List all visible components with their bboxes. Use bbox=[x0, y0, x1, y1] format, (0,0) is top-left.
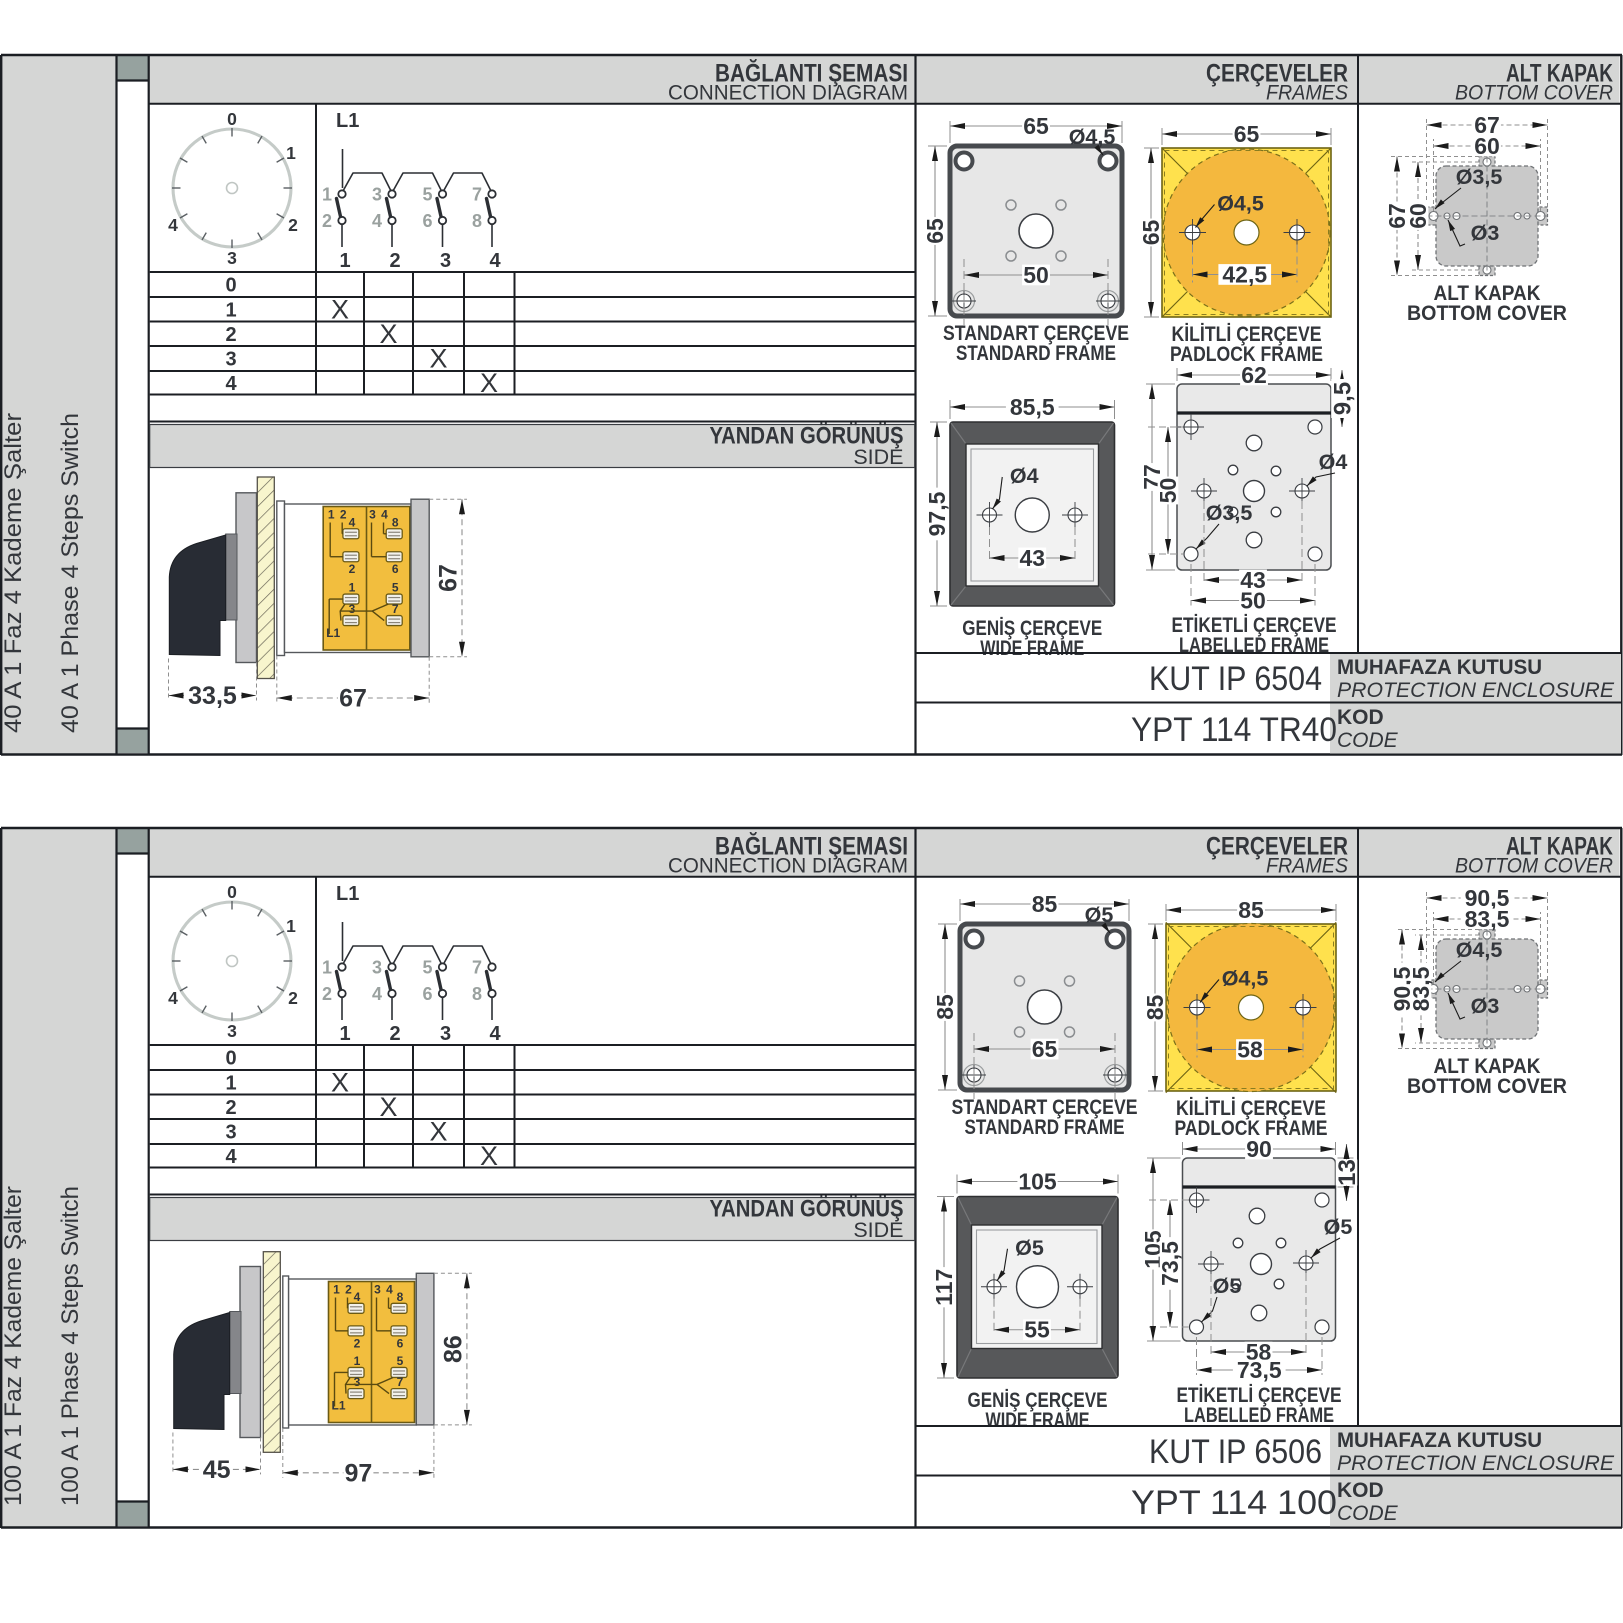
svg-text:Ø3,5: Ø3,5 bbox=[1206, 501, 1253, 525]
svg-text:50: 50 bbox=[1155, 478, 1181, 504]
svg-text:1: 1 bbox=[225, 1072, 236, 1094]
svg-text:2: 2 bbox=[345, 1283, 352, 1297]
svg-text:YPT 114 100: YPT 114 100 bbox=[1131, 1484, 1337, 1522]
svg-text:65: 65 bbox=[1023, 113, 1049, 139]
svg-text:0: 0 bbox=[227, 109, 237, 129]
svg-text:1: 1 bbox=[225, 299, 236, 321]
svg-text:3: 3 bbox=[354, 1375, 361, 1389]
svg-text:L1: L1 bbox=[331, 1399, 345, 1413]
svg-text:BOTTOM COVER: BOTTOM COVER bbox=[1455, 854, 1613, 878]
svg-text:FRAMES: FRAMES bbox=[1266, 81, 1349, 105]
svg-text:100 A 1 Faz 4 Kademe Şalter: 100 A 1 Faz 4 Kademe Şalter bbox=[0, 1186, 27, 1506]
svg-text:42,5: 42,5 bbox=[1222, 261, 1267, 287]
svg-text:SIDE: SIDE bbox=[853, 445, 903, 469]
svg-text:7: 7 bbox=[392, 602, 399, 616]
svg-text:85,5: 85,5 bbox=[1010, 394, 1055, 420]
svg-text:0: 0 bbox=[225, 1048, 236, 1070]
svg-text:WIDE FRAME: WIDE FRAME bbox=[980, 636, 1084, 660]
svg-text:85: 85 bbox=[932, 994, 958, 1020]
svg-text:1: 1 bbox=[286, 143, 296, 163]
svg-text:97,5: 97,5 bbox=[924, 491, 950, 536]
svg-text:4: 4 bbox=[349, 515, 356, 529]
svg-text:58: 58 bbox=[1237, 1036, 1263, 1062]
svg-text:Ø3: Ø3 bbox=[1471, 221, 1500, 245]
svg-text:90: 90 bbox=[1246, 1136, 1272, 1162]
svg-text:43: 43 bbox=[1019, 545, 1045, 571]
svg-text:62: 62 bbox=[1241, 362, 1267, 388]
svg-text:6: 6 bbox=[397, 1336, 404, 1350]
svg-text:Ø5: Ø5 bbox=[1213, 1274, 1242, 1298]
svg-text:1: 1 bbox=[322, 958, 332, 978]
svg-text:X: X bbox=[429, 344, 447, 374]
svg-text:Ø4,5: Ø4,5 bbox=[1222, 967, 1269, 991]
svg-text:L1: L1 bbox=[326, 626, 340, 640]
svg-text:60: 60 bbox=[1474, 133, 1500, 159]
svg-text:3: 3 bbox=[349, 602, 356, 616]
svg-text:6: 6 bbox=[422, 211, 432, 231]
svg-text:3: 3 bbox=[369, 508, 376, 522]
svg-text:4: 4 bbox=[168, 215, 178, 235]
svg-text:MUHAFAZA KUTUSU: MUHAFAZA KUTUSU bbox=[1337, 1429, 1542, 1452]
svg-text:2: 2 bbox=[225, 1097, 236, 1119]
svg-text:8: 8 bbox=[472, 984, 482, 1004]
svg-text:3: 3 bbox=[225, 1122, 236, 1144]
svg-text:Ø4,5: Ø4,5 bbox=[1456, 938, 1503, 962]
svg-text:2: 2 bbox=[225, 324, 236, 346]
svg-text:65: 65 bbox=[1234, 121, 1260, 147]
svg-text:PROTECTION ENCLOSURE: PROTECTION ENCLOSURE bbox=[1337, 1452, 1615, 1475]
svg-text:1: 1 bbox=[339, 250, 350, 272]
svg-text:67: 67 bbox=[339, 685, 367, 713]
svg-text:MUHAFAZA KUTUSU: MUHAFAZA KUTUSU bbox=[1337, 656, 1542, 679]
svg-text:3: 3 bbox=[372, 958, 382, 978]
svg-text:3: 3 bbox=[227, 248, 237, 268]
svg-text:4: 4 bbox=[489, 1023, 501, 1045]
svg-text:8: 8 bbox=[472, 211, 482, 231]
svg-text:4: 4 bbox=[168, 988, 178, 1008]
svg-text:13: 13 bbox=[1334, 1159, 1361, 1186]
svg-text:65: 65 bbox=[922, 218, 948, 244]
svg-text:55: 55 bbox=[1024, 1317, 1050, 1343]
svg-text:Ø5: Ø5 bbox=[1015, 1236, 1044, 1260]
svg-text:9,5: 9,5 bbox=[1329, 382, 1356, 415]
svg-text:2: 2 bbox=[354, 1336, 361, 1350]
svg-text:65: 65 bbox=[1032, 1036, 1058, 1062]
svg-text:STANDARD FRAME: STANDARD FRAME bbox=[956, 341, 1116, 365]
svg-text:67: 67 bbox=[435, 564, 463, 592]
svg-text:65: 65 bbox=[1138, 220, 1164, 246]
svg-text:5: 5 bbox=[392, 581, 399, 595]
svg-text:KUT IP 6504: KUT IP 6504 bbox=[1149, 660, 1322, 698]
svg-text:7: 7 bbox=[472, 185, 482, 205]
svg-text:0: 0 bbox=[225, 275, 236, 297]
svg-text:1: 1 bbox=[339, 1023, 350, 1045]
svg-text:6: 6 bbox=[392, 562, 399, 576]
svg-text:X: X bbox=[480, 368, 498, 398]
svg-text:2: 2 bbox=[340, 508, 347, 522]
svg-text:KUT IP 6506: KUT IP 6506 bbox=[1149, 1433, 1322, 1471]
svg-text:85: 85 bbox=[1032, 891, 1058, 917]
svg-text:Ø5: Ø5 bbox=[1085, 903, 1114, 927]
svg-text:X: X bbox=[379, 1092, 397, 1122]
svg-text:X: X bbox=[331, 294, 349, 324]
svg-text:X: X bbox=[480, 1141, 498, 1171]
svg-text:Ø3: Ø3 bbox=[1471, 994, 1500, 1018]
svg-text:4: 4 bbox=[489, 250, 501, 272]
svg-text:2: 2 bbox=[288, 988, 298, 1008]
svg-text:2: 2 bbox=[322, 211, 332, 231]
svg-text:117: 117 bbox=[931, 1269, 957, 1306]
svg-text:BOTTOM COVER: BOTTOM COVER bbox=[1455, 81, 1613, 105]
svg-text:73,5: 73,5 bbox=[1237, 1357, 1282, 1383]
svg-text:4: 4 bbox=[381, 508, 388, 522]
svg-text:40 A 1 Phase 4 Steps Switch: 40 A 1 Phase 4 Steps Switch bbox=[57, 413, 84, 733]
svg-text:L1: L1 bbox=[336, 883, 359, 905]
svg-text:73,5: 73,5 bbox=[1157, 1241, 1183, 1286]
svg-text:WIDE FRAME: WIDE FRAME bbox=[986, 1408, 1090, 1432]
svg-text:3: 3 bbox=[225, 349, 236, 371]
svg-text:50: 50 bbox=[1023, 262, 1049, 288]
svg-text:X: X bbox=[331, 1067, 349, 1097]
svg-text:83,5: 83,5 bbox=[1408, 966, 1434, 1011]
svg-text:7: 7 bbox=[397, 1375, 404, 1389]
svg-text:3: 3 bbox=[372, 185, 382, 205]
svg-text:Ø4: Ø4 bbox=[1319, 450, 1348, 474]
svg-text:Ø3,5: Ø3,5 bbox=[1456, 165, 1503, 189]
svg-text:3: 3 bbox=[440, 1023, 451, 1045]
svg-text:YPT 114 TR40: YPT 114 TR40 bbox=[1131, 711, 1337, 749]
svg-text:L1: L1 bbox=[336, 110, 359, 132]
svg-text:Ø4,5: Ø4,5 bbox=[1069, 125, 1116, 149]
svg-text:6: 6 bbox=[422, 984, 432, 1004]
svg-text:2: 2 bbox=[389, 250, 400, 272]
svg-text:105: 105 bbox=[1018, 1168, 1057, 1194]
svg-text:1: 1 bbox=[349, 581, 356, 595]
svg-text:40 A 1 Faz 4 Kademe Şalter: 40 A 1 Faz 4 Kademe Şalter bbox=[0, 413, 27, 733]
svg-text:85: 85 bbox=[1142, 995, 1168, 1021]
svg-text:4: 4 bbox=[354, 1290, 361, 1304]
svg-text:Ø4: Ø4 bbox=[1010, 464, 1039, 488]
svg-text:5: 5 bbox=[397, 1354, 404, 1368]
svg-text:4: 4 bbox=[372, 984, 382, 1004]
svg-text:Ø5: Ø5 bbox=[1324, 1215, 1353, 1239]
svg-text:50: 50 bbox=[1240, 587, 1266, 613]
svg-text:PROTECTION ENCLOSURE: PROTECTION ENCLOSURE bbox=[1337, 679, 1615, 702]
svg-text:3: 3 bbox=[227, 1021, 237, 1041]
svg-text:CODE: CODE bbox=[1337, 729, 1399, 752]
svg-text:45: 45 bbox=[203, 1456, 231, 1484]
svg-text:3: 3 bbox=[440, 250, 451, 272]
svg-text:0: 0 bbox=[227, 882, 237, 902]
svg-text:LABELLED FRAME: LABELLED FRAME bbox=[1184, 1403, 1334, 1427]
svg-text:1: 1 bbox=[354, 1354, 361, 1368]
svg-text:KOD: KOD bbox=[1337, 706, 1384, 729]
svg-text:4: 4 bbox=[225, 1146, 237, 1168]
svg-text:CONNECTION DIAGRAM: CONNECTION DIAGRAM bbox=[668, 81, 908, 105]
svg-text:FRAMES: FRAMES bbox=[1266, 854, 1349, 878]
svg-text:X: X bbox=[429, 1117, 447, 1147]
svg-text:8: 8 bbox=[397, 1290, 404, 1304]
svg-text:4: 4 bbox=[372, 211, 382, 231]
svg-text:85: 85 bbox=[1238, 897, 1264, 923]
svg-text:7: 7 bbox=[472, 958, 482, 978]
svg-text:5: 5 bbox=[422, 958, 432, 978]
svg-text:2: 2 bbox=[288, 215, 298, 235]
svg-text:4: 4 bbox=[225, 373, 237, 395]
svg-text:83,5: 83,5 bbox=[1465, 906, 1510, 932]
svg-text:Ø4,5: Ø4,5 bbox=[1217, 192, 1264, 216]
svg-text:SIDE: SIDE bbox=[853, 1218, 903, 1242]
svg-text:100 A 1 Phase 4 Steps Switch: 100 A 1 Phase 4 Steps Switch bbox=[57, 1186, 84, 1506]
svg-text:2: 2 bbox=[349, 562, 356, 576]
svg-text:BOTTOM COVER: BOTTOM COVER bbox=[1407, 301, 1567, 325]
svg-text:CONNECTION DIAGRAM: CONNECTION DIAGRAM bbox=[668, 854, 908, 878]
svg-text:4: 4 bbox=[386, 1283, 393, 1297]
svg-text:2: 2 bbox=[322, 984, 332, 1004]
svg-text:1: 1 bbox=[328, 508, 335, 522]
svg-text:1: 1 bbox=[286, 916, 296, 936]
svg-text:8: 8 bbox=[392, 515, 399, 529]
svg-text:97: 97 bbox=[344, 1459, 372, 1487]
svg-text:2: 2 bbox=[389, 1023, 400, 1045]
svg-text:1: 1 bbox=[322, 185, 332, 205]
svg-text:86: 86 bbox=[440, 1335, 468, 1363]
svg-text:33,5: 33,5 bbox=[188, 682, 237, 710]
svg-text:3: 3 bbox=[374, 1283, 381, 1297]
svg-text:X: X bbox=[379, 319, 397, 349]
svg-text:60: 60 bbox=[1405, 203, 1431, 229]
svg-text:1: 1 bbox=[333, 1283, 340, 1297]
svg-text:STANDARD FRAME: STANDARD FRAME bbox=[965, 1115, 1125, 1139]
svg-text:KOD: KOD bbox=[1337, 1479, 1384, 1502]
svg-text:BOTTOM COVER: BOTTOM COVER bbox=[1407, 1074, 1567, 1098]
svg-text:CODE: CODE bbox=[1337, 1502, 1399, 1525]
svg-text:5: 5 bbox=[422, 185, 432, 205]
